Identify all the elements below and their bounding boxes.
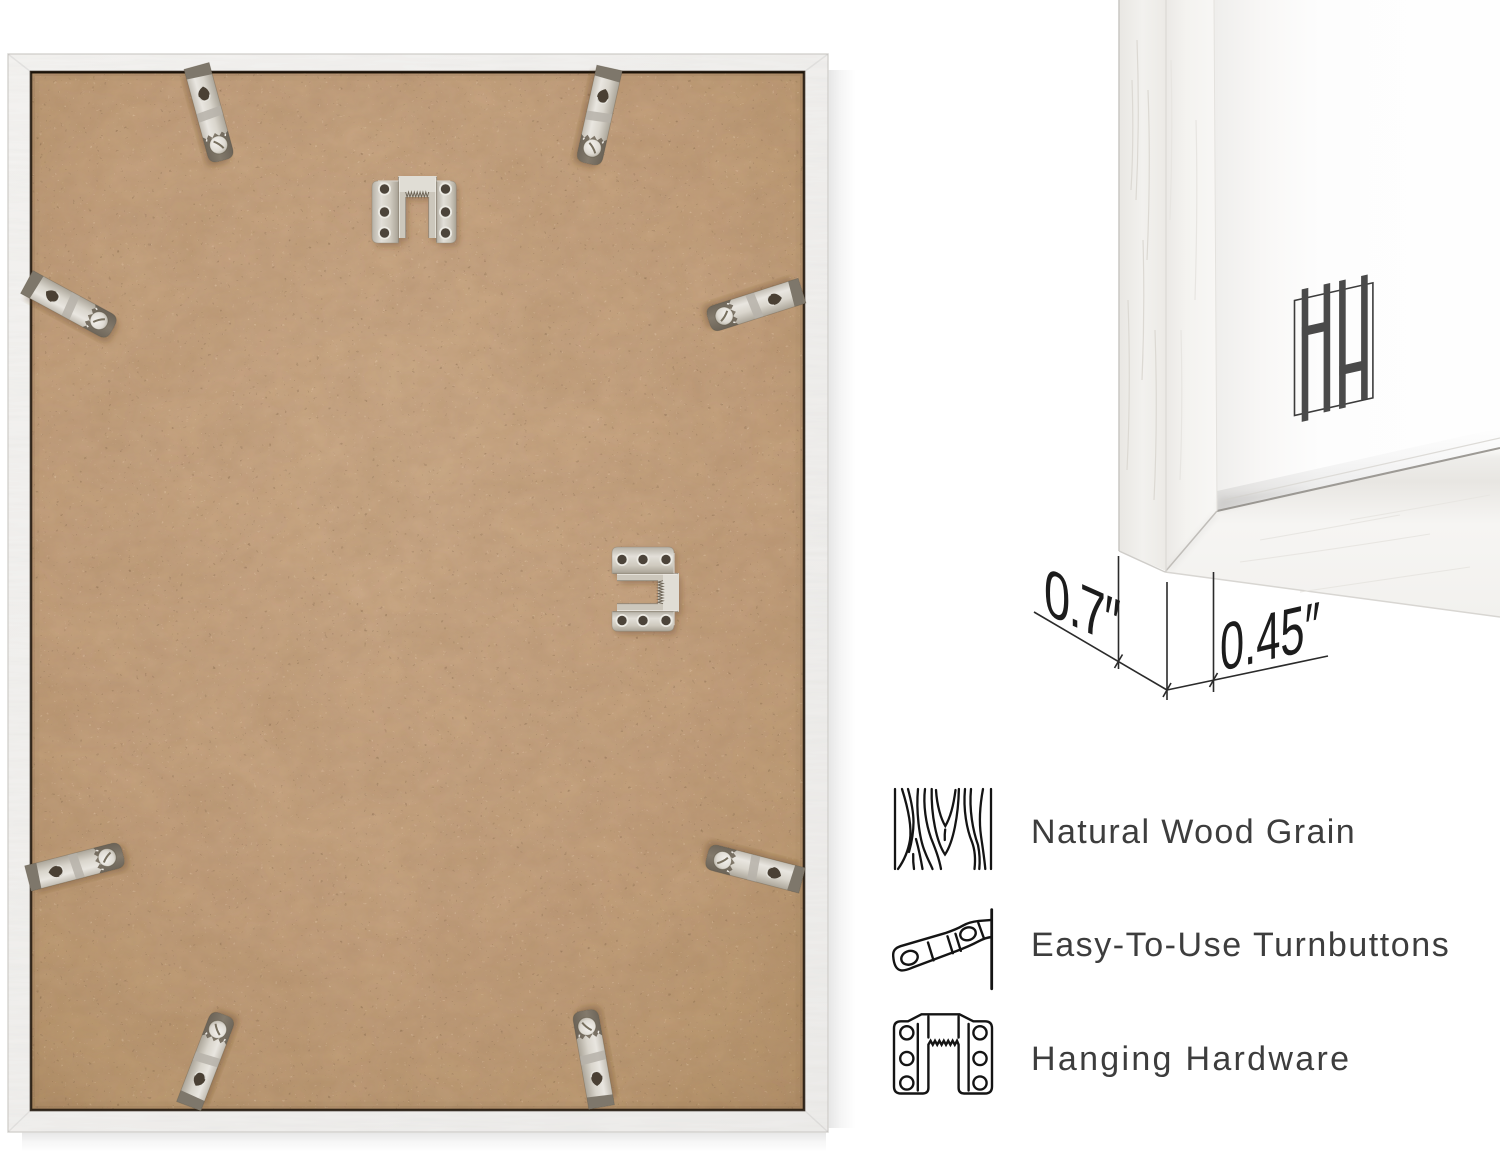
svg-text:Natural Wood Grain: Natural Wood Grain	[1031, 813, 1356, 851]
svg-text:Easy-To-Use Turnbuttons: Easy-To-Use Turnbuttons	[1031, 926, 1450, 964]
svg-text:Hanging Hardware: Hanging Hardware	[1031, 1040, 1351, 1078]
